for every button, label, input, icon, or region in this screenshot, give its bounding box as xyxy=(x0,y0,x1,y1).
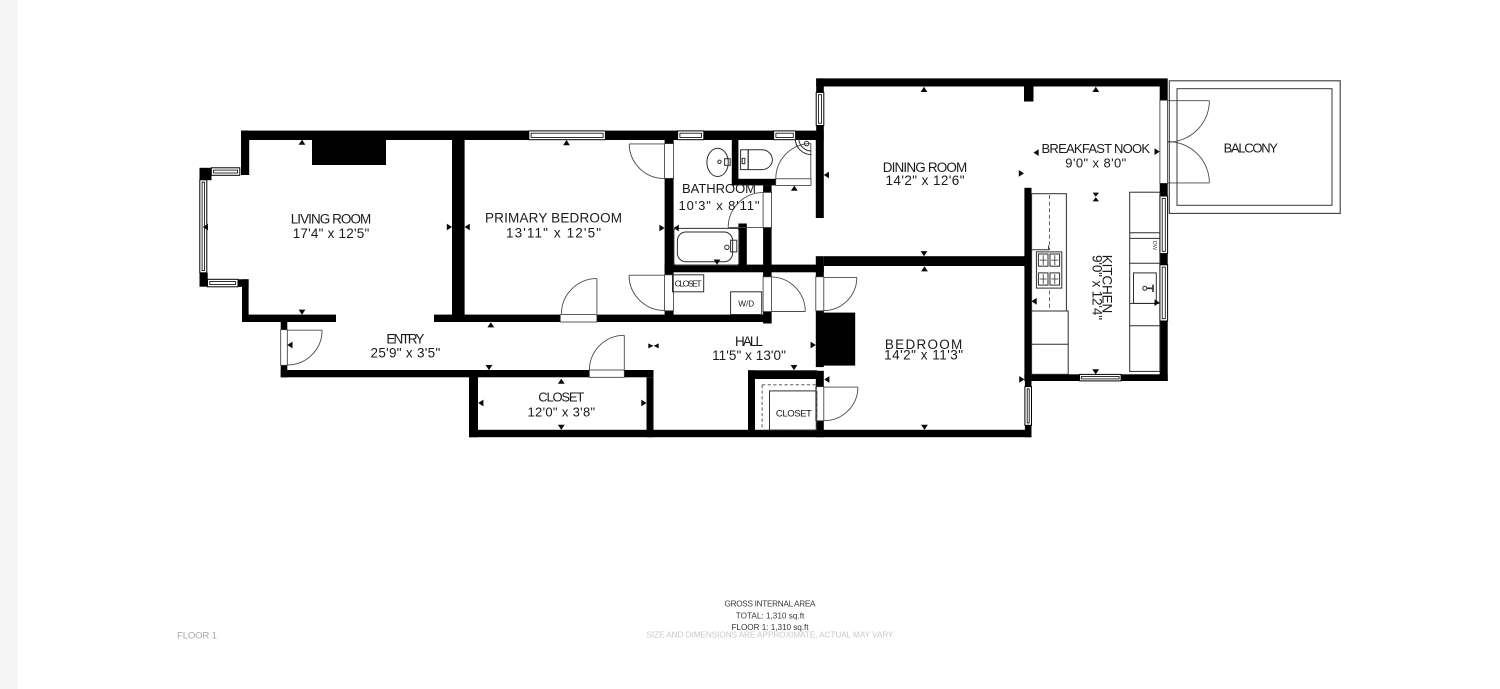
svg-text:BREAKFAST NOOK: BREAKFAST NOOK xyxy=(1042,141,1151,156)
svg-text:LIVING ROOM: LIVING ROOM xyxy=(291,212,372,227)
svg-text:13'11" x 12'5": 13'11" x 12'5" xyxy=(506,225,601,240)
svg-text:25'9" x 3'5": 25'9" x 3'5" xyxy=(371,346,441,361)
svg-text:HALL: HALL xyxy=(735,334,763,349)
svg-text:FLOOR 1: FLOOR 1 xyxy=(177,630,217,641)
svg-text:CLOSET: CLOSET xyxy=(776,409,812,420)
svg-text:GROSS INTERNAL AREA: GROSS INTERNAL AREA xyxy=(725,599,817,608)
svg-text:CLOSET: CLOSET xyxy=(675,279,703,289)
svg-text:11'5" x 13'0": 11'5" x 13'0" xyxy=(712,348,786,363)
svg-text:9'0" x 12'4": 9'0" x 12'4" xyxy=(1089,255,1104,320)
svg-text:9'0" x 8'0": 9'0" x 8'0" xyxy=(1065,155,1126,170)
svg-text:SIZE AND DIMENSIONS ARE APPROX: SIZE AND DIMENSIONS ARE APPROXIMATE, ACT… xyxy=(647,631,895,640)
svg-text:17'4" x 12'5": 17'4" x 12'5" xyxy=(293,226,370,241)
svg-text:ENTRY: ENTRY xyxy=(386,331,424,346)
svg-text:TOTAL: 1,310 sq.ft: TOTAL: 1,310 sq.ft xyxy=(736,612,805,621)
svg-text:BALCONY: BALCONY xyxy=(1224,140,1279,155)
svg-text:14'2" x 11'3": 14'2" x 11'3" xyxy=(884,348,963,363)
svg-text:BATHROOM: BATHROOM xyxy=(682,181,756,196)
svg-text:12'0" x 3'8": 12'0" x 3'8" xyxy=(527,404,595,419)
svg-text:PRIMARY BEDROOM: PRIMARY BEDROOM xyxy=(485,211,622,226)
svg-text:14'2" x 12'6": 14'2" x 12'6" xyxy=(886,173,965,188)
svg-text:CLOSET: CLOSET xyxy=(538,390,584,405)
svg-text:10'3" x 8'11": 10'3" x 8'11" xyxy=(679,198,760,213)
svg-text:W/D: W/D xyxy=(738,299,754,308)
svg-text:DW: DW xyxy=(1151,241,1157,251)
